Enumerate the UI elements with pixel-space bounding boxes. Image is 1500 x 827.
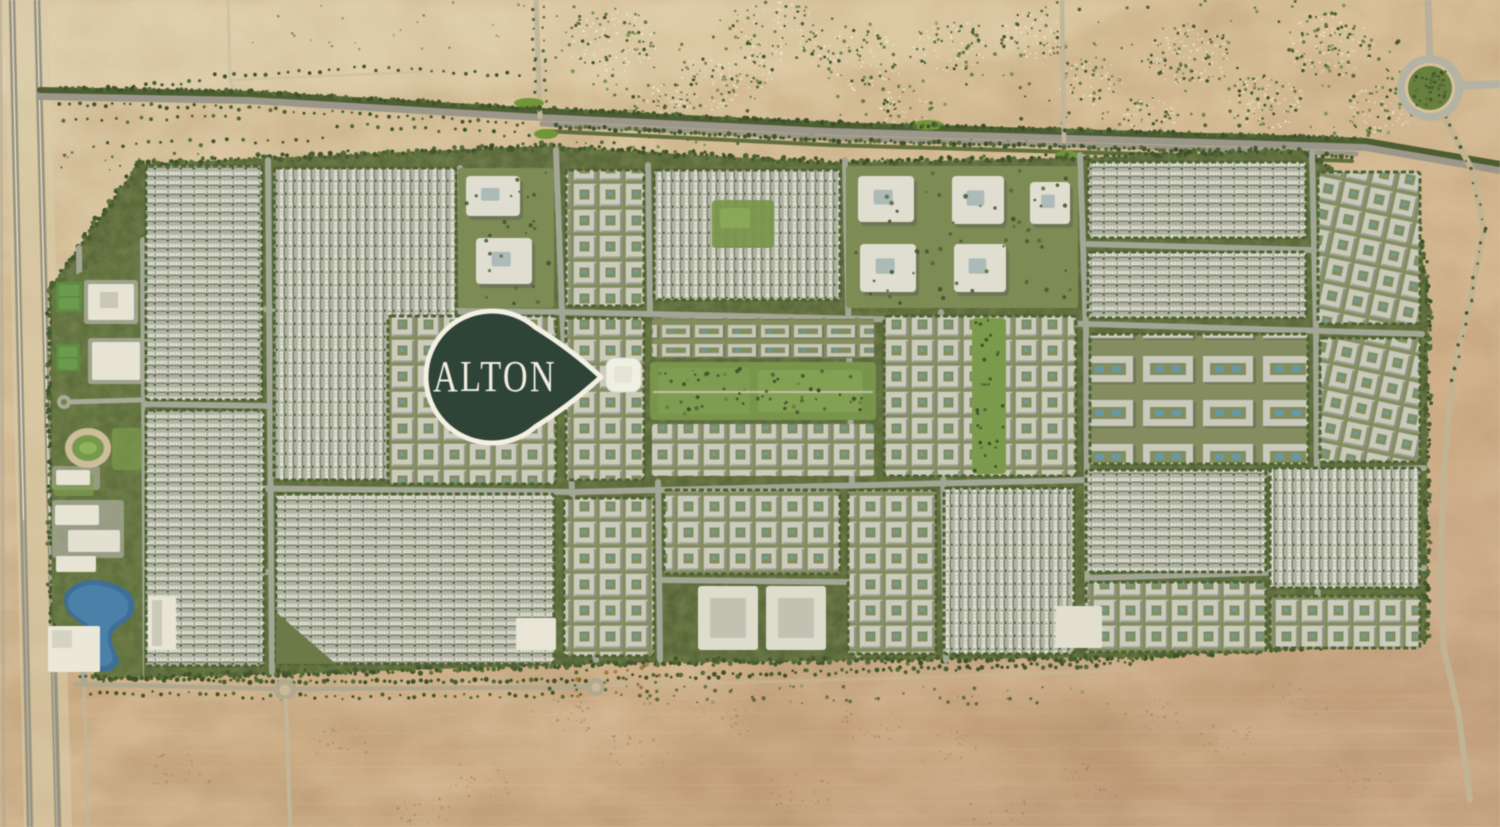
svg-text:ALTON: ALTON (433, 352, 557, 401)
